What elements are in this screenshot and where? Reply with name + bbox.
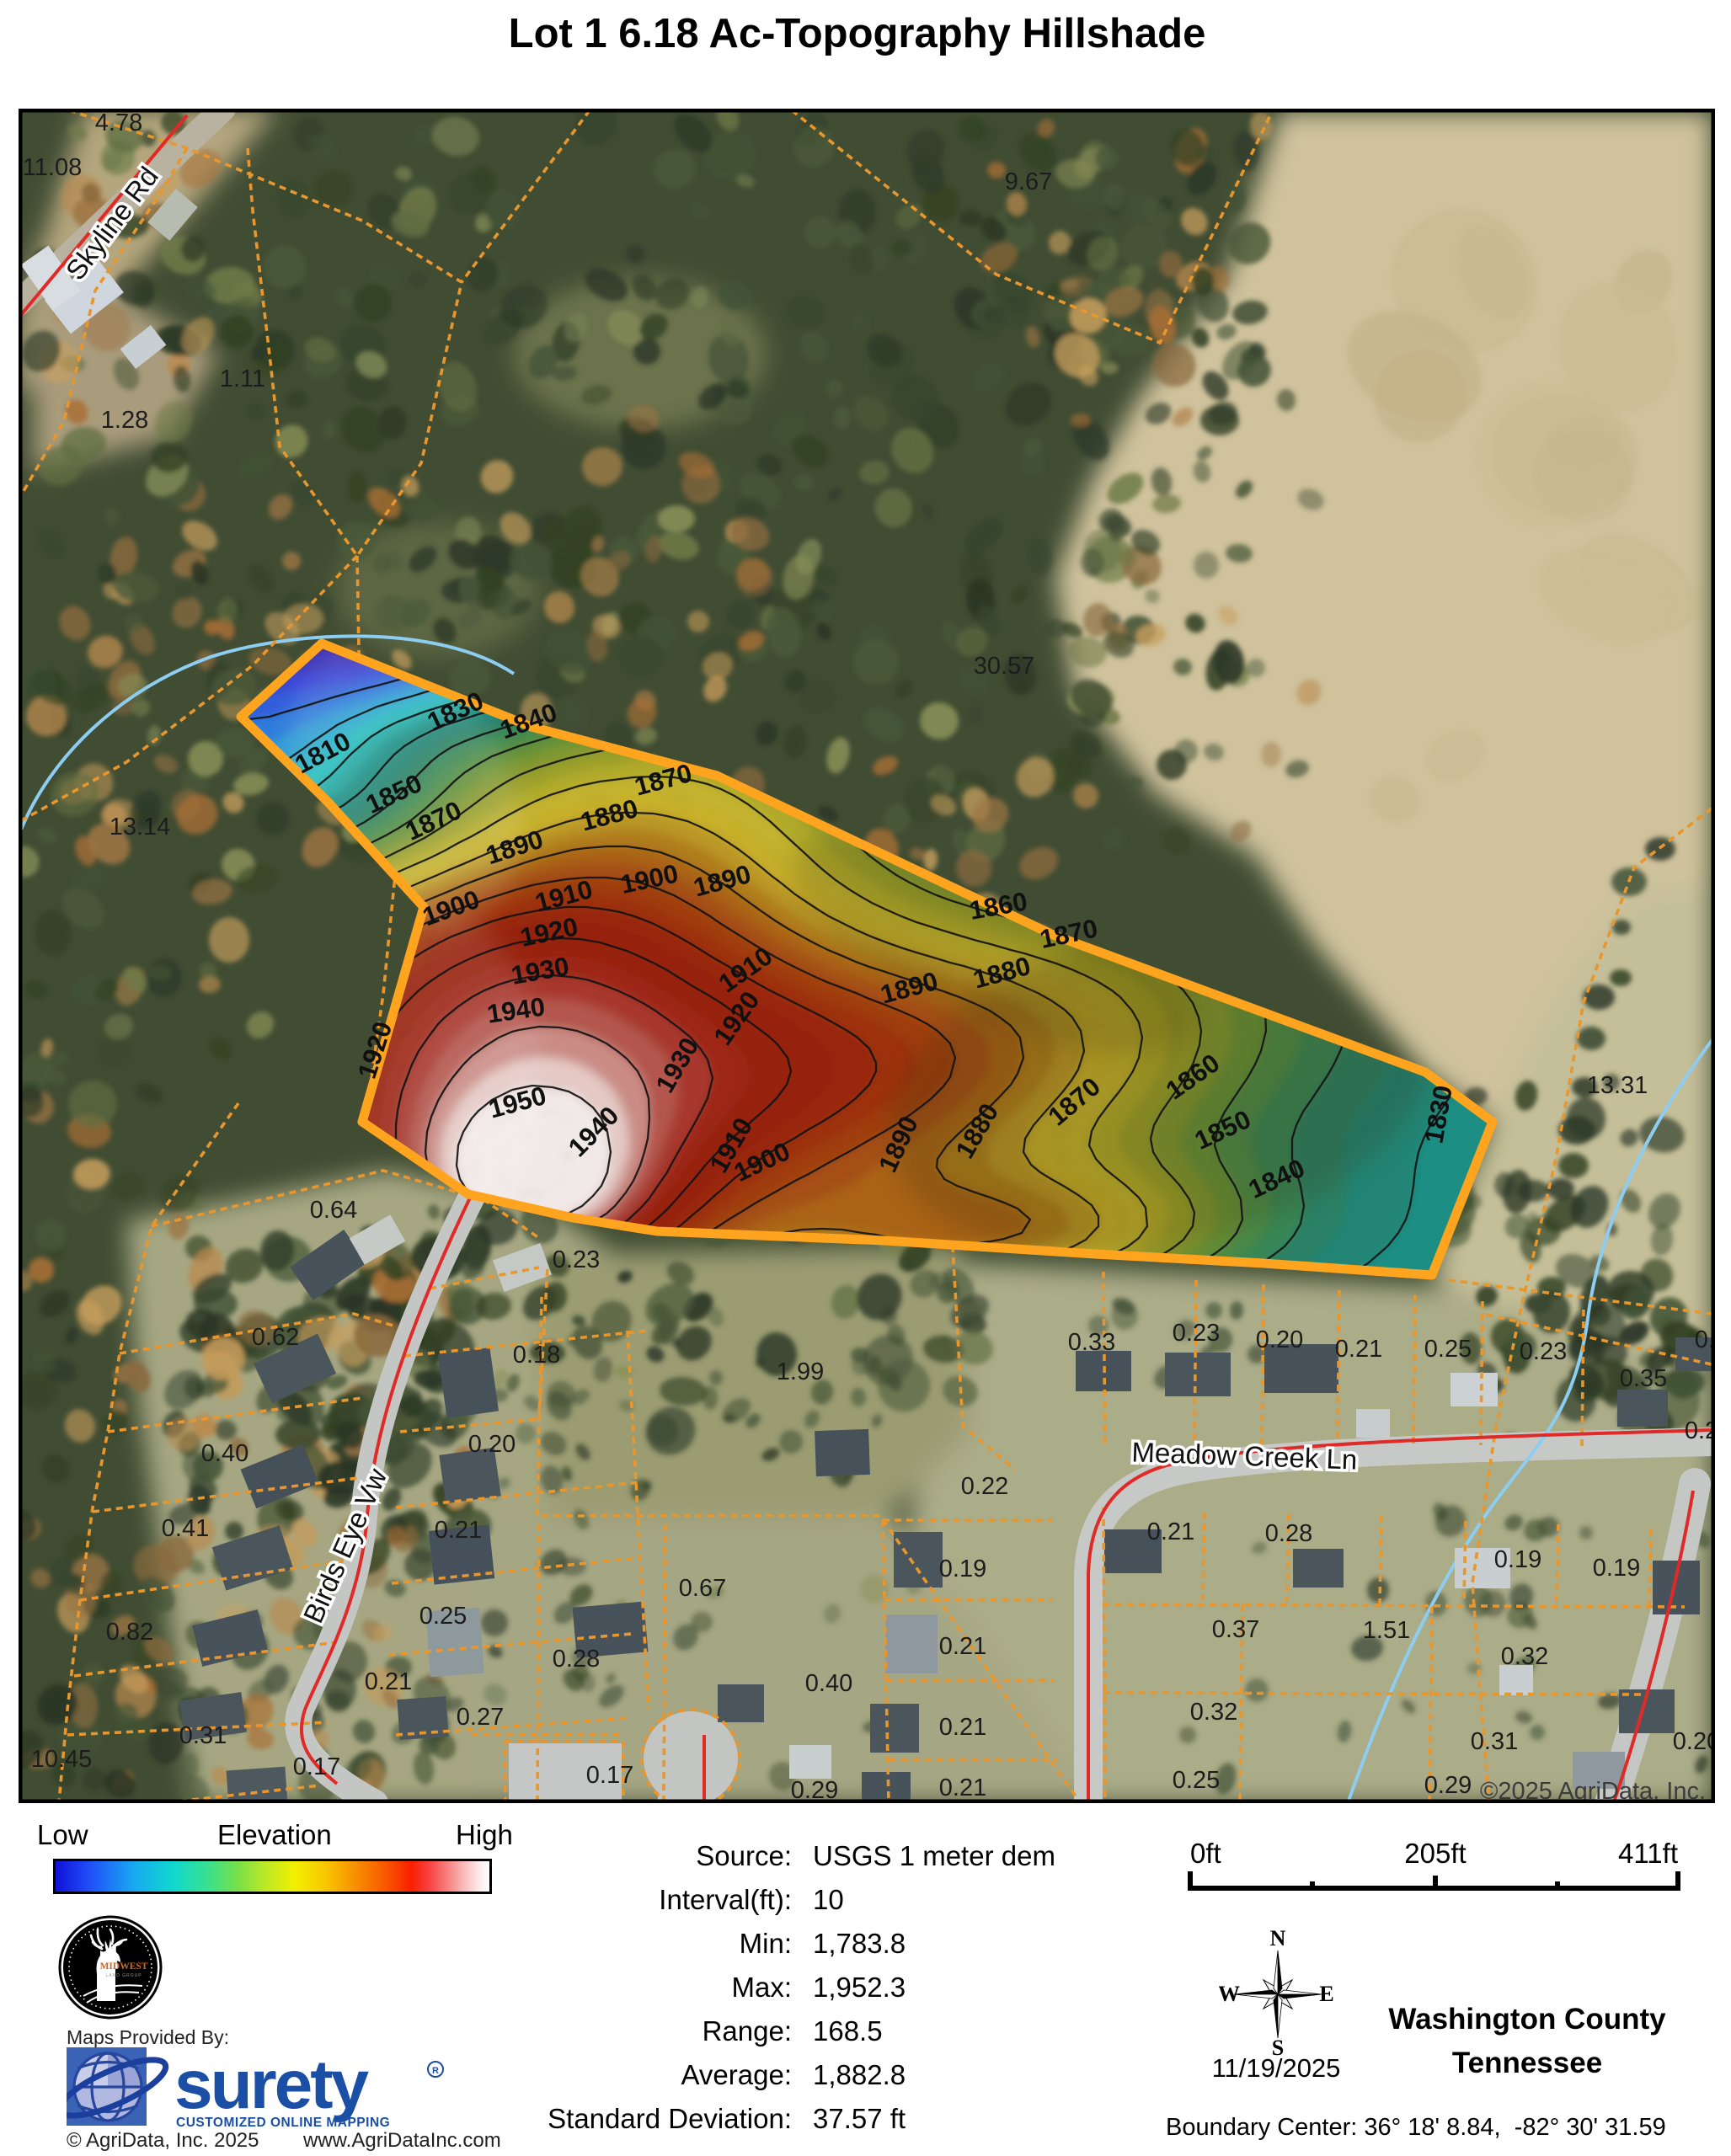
svg-text:0.28: 0.28 <box>553 1646 600 1673</box>
svg-text:0.23: 0.23 <box>1173 1320 1220 1347</box>
svg-text:0.33: 0.33 <box>1068 1329 1115 1356</box>
svg-text:13.14: 13.14 <box>110 814 171 841</box>
svg-text:13.31: 13.31 <box>1587 1072 1648 1099</box>
svg-text:0.28: 0.28 <box>1265 1520 1312 1547</box>
svg-text:0.22: 0.22 <box>961 1473 1008 1500</box>
svg-text:0.64: 0.64 <box>310 1197 357 1224</box>
svg-text:0.21: 0.21 <box>939 1774 986 1801</box>
svg-text:0.40: 0.40 <box>201 1440 248 1467</box>
svg-text:0.82: 0.82 <box>106 1619 153 1646</box>
svg-text:0.32: 0.32 <box>1501 1643 1548 1670</box>
svg-text:0.21: 0.21 <box>1335 1336 1382 1363</box>
svg-text:0.21: 0.21 <box>939 1714 986 1741</box>
svg-text:0.21: 0.21 <box>1147 1518 1194 1545</box>
svg-text:0.40: 0.40 <box>805 1670 852 1697</box>
svg-text:0.31: 0.31 <box>1471 1728 1518 1755</box>
svg-text:1.99: 1.99 <box>777 1358 824 1385</box>
svg-text:0.20: 0.20 <box>1256 1326 1303 1353</box>
svg-text:0.17: 0.17 <box>586 1762 633 1789</box>
svg-text:0.19: 0.19 <box>939 1556 986 1582</box>
svg-text:0.18: 0.18 <box>513 1342 560 1369</box>
svg-text:411ft: 411ft <box>1618 1838 1678 1869</box>
svg-text:30.57: 30.57 <box>974 653 1035 680</box>
svg-text:0.25: 0.25 <box>1173 1767 1220 1794</box>
svg-text:0.32: 0.32 <box>1190 1699 1237 1726</box>
svg-text:9.67: 9.67 <box>1005 168 1052 195</box>
svg-text:LAND GROUP: LAND GROUP <box>105 1973 142 1978</box>
svg-text:1.28: 1.28 <box>101 407 148 434</box>
svg-text:1.11: 1.11 <box>220 366 265 392</box>
svg-text:205ft: 205ft <box>1404 1838 1466 1869</box>
svg-text:0.25: 0.25 <box>419 1603 467 1630</box>
svg-text:10.45: 10.45 <box>31 1746 93 1773</box>
svg-text:0.29: 0.29 <box>791 1777 838 1803</box>
svg-text:0.31: 0.31 <box>179 1722 227 1749</box>
svg-text:0.67: 0.67 <box>679 1575 726 1602</box>
svg-text:4.78: 4.78 <box>95 109 142 136</box>
svg-text:0.62: 0.62 <box>252 1324 299 1351</box>
svg-text:0.27: 0.27 <box>457 1704 504 1731</box>
svg-text:MIDWEST: MIDWEST <box>100 1961 148 1972</box>
svg-text:N: N <box>1270 1927 1286 1951</box>
svg-text:0.19: 0.19 <box>1593 1555 1640 1582</box>
svg-text:0.37: 0.37 <box>1212 1616 1259 1643</box>
svg-text:0.2: 0.2 <box>1685 1417 1715 1444</box>
svg-text:0.21: 0.21 <box>435 1517 482 1544</box>
svg-text:E: E <box>1319 1982 1333 2006</box>
svg-text:0.35: 0.35 <box>1620 1365 1667 1392</box>
svg-text:0.23: 0.23 <box>553 1246 600 1273</box>
svg-text:0.41: 0.41 <box>162 1515 209 1542</box>
svg-text:0ft: 0ft <box>1190 1838 1221 1869</box>
svg-text:0.20: 0.20 <box>1673 1728 1715 1755</box>
svg-text:0.25: 0.25 <box>1424 1336 1472 1363</box>
svg-text:0.29: 0.29 <box>1424 1772 1472 1799</box>
svg-text:0.20: 0.20 <box>468 1431 516 1458</box>
svg-text:11.08: 11.08 <box>23 154 82 181</box>
svg-text:0.23: 0.23 <box>1520 1338 1567 1365</box>
svg-text:0.19: 0.19 <box>1494 1546 1541 1573</box>
svg-text:0.17: 0.17 <box>293 1753 340 1780</box>
svg-text:1.51: 1.51 <box>1363 1617 1410 1644</box>
svg-text:0.21: 0.21 <box>365 1668 412 1695</box>
svg-text:0.21: 0.21 <box>939 1633 986 1660</box>
